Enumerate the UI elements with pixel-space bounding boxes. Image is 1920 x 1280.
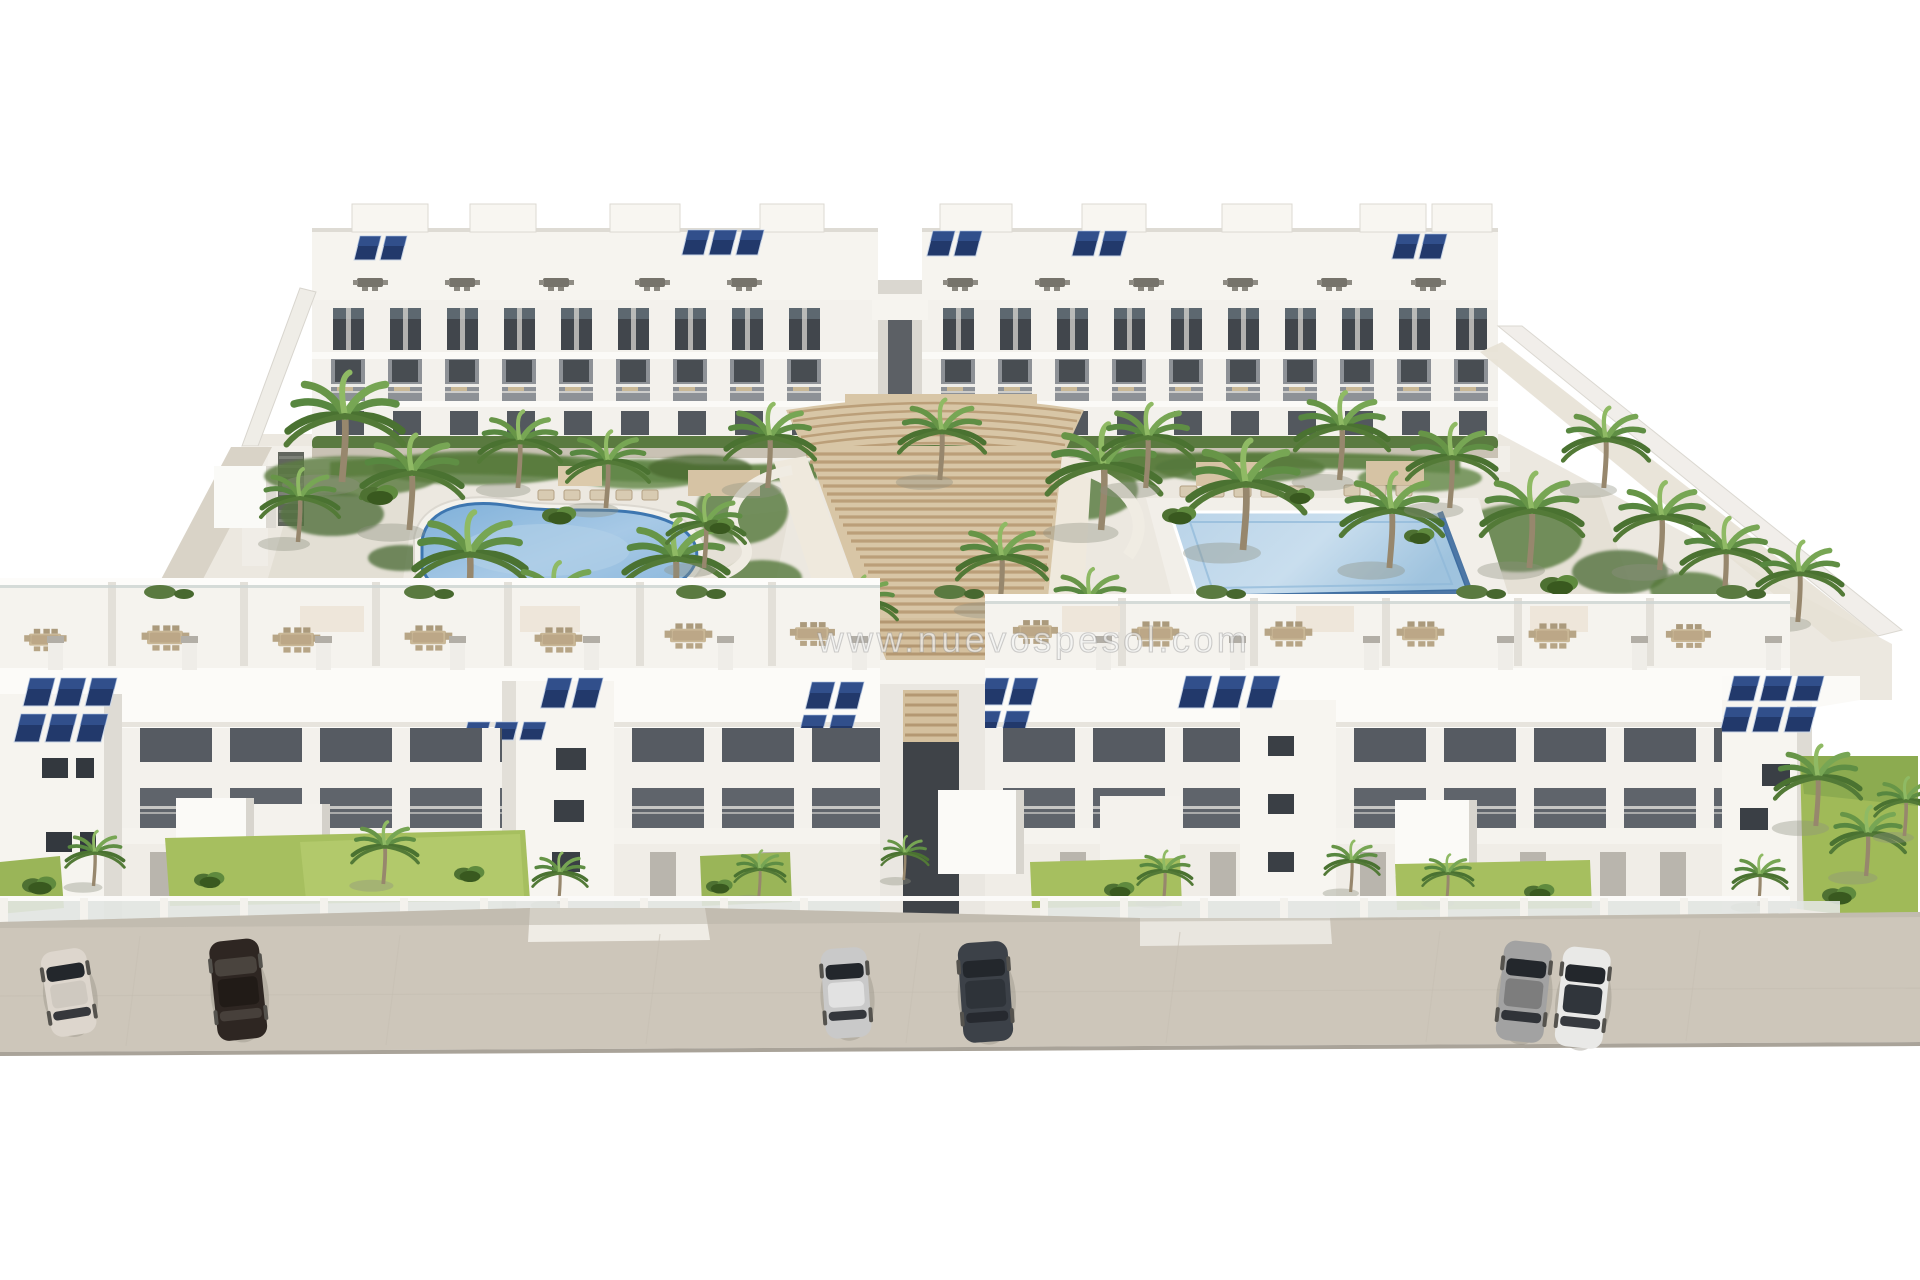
svg-text:www.nuevospesol.com: www.nuevospesol.com bbox=[817, 619, 1251, 660]
